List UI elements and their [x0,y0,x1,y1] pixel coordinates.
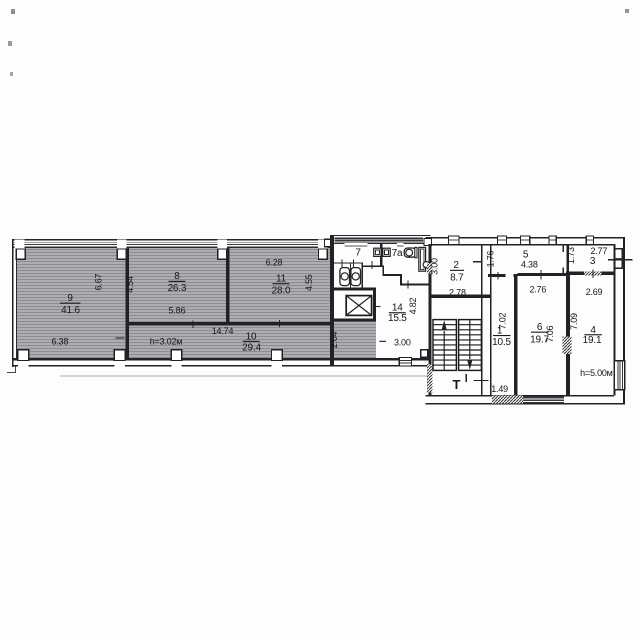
svg-text:9: 9 [67,293,73,304]
svg-text:2.78: 2.78 [449,287,466,297]
svg-text:6.28: 6.28 [266,257,283,267]
svg-text:8: 8 [174,271,180,282]
svg-text:2.77: 2.77 [590,246,607,256]
svg-text:6.38: 6.38 [51,336,68,346]
svg-text:8.7: 8.7 [450,272,464,283]
svg-text:14.74: 14.74 [212,326,234,336]
svg-text:7.06: 7.06 [545,325,555,342]
svg-text:4.82: 4.82 [408,297,418,314]
svg-text:19.1: 19.1 [583,335,602,346]
svg-text:28.0: 28.0 [272,285,291,296]
svg-text:7.02: 7.02 [498,312,508,329]
svg-text:4: 4 [590,325,596,336]
svg-text:10.5: 10.5 [492,337,511,348]
svg-text:2.04: 2.04 [329,331,339,348]
svg-text:2.69: 2.69 [586,287,603,297]
svg-text:15.5: 15.5 [388,313,407,324]
svg-text:h=5.00м: h=5.00м [580,368,613,378]
svg-text:2.76: 2.76 [529,285,546,295]
svg-text:3: 3 [590,256,596,267]
svg-text:10: 10 [246,331,257,342]
svg-text:6: 6 [537,322,543,333]
svg-text:4.38: 4.38 [521,260,538,270]
svg-text:11: 11 [276,274,287,285]
svg-text:7a: 7a [392,248,403,259]
svg-text:7.09: 7.09 [569,313,579,330]
svg-text:6.67: 6.67 [93,273,103,290]
svg-text:h=3.02м: h=3.02м [150,336,183,346]
svg-text:4.55: 4.55 [304,274,314,291]
svg-text:2: 2 [453,260,459,271]
svg-text:T: T [453,377,461,392]
svg-text:41.6: 41.6 [61,305,80,316]
svg-text:3.00: 3.00 [430,258,440,275]
svg-text:4.54: 4.54 [125,276,135,293]
svg-text:1.73: 1.73 [566,247,576,264]
svg-text:29.4: 29.4 [242,343,261,354]
svg-text:1.76: 1.76 [486,250,496,267]
svg-text:1.49: 1.49 [491,384,508,394]
svg-text:5.86: 5.86 [169,305,186,315]
svg-text:7: 7 [355,248,361,259]
svg-text:3.00: 3.00 [394,338,411,348]
svg-text:26.3: 26.3 [168,283,187,294]
svg-text:14: 14 [392,303,403,314]
